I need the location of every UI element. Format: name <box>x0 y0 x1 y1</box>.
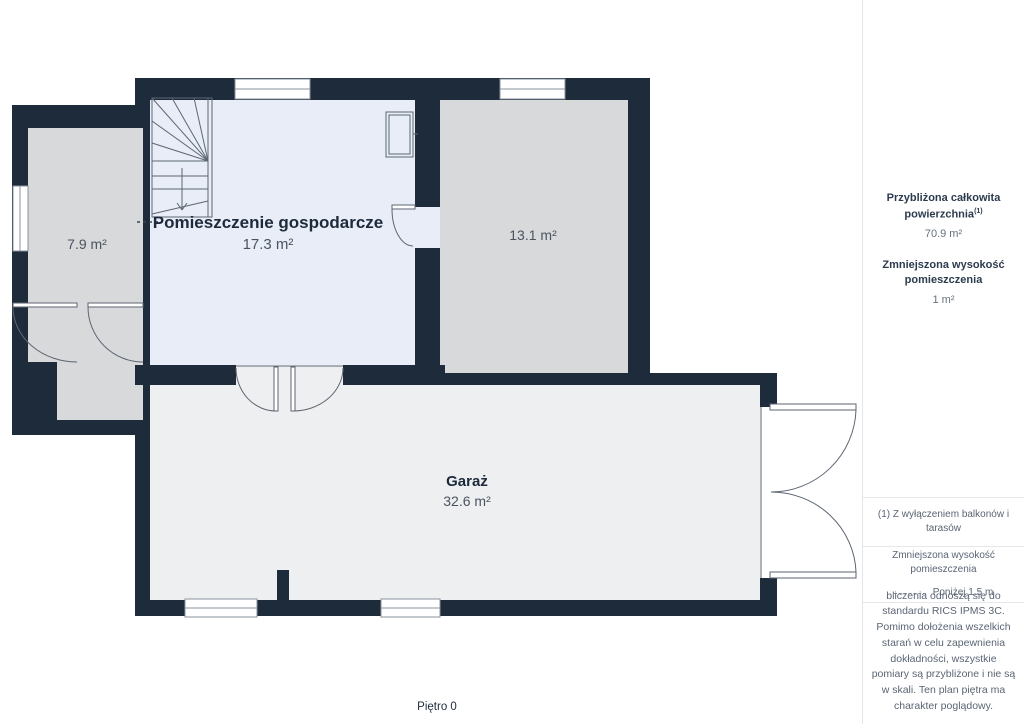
garage-name: Garaż <box>446 473 488 490</box>
footnote-section: (1) Z wyłączeniem balkonów i tarasów <box>863 498 1024 547</box>
window-top-right <box>500 79 565 99</box>
reduced-height-title: Zmniejszona wysokość pomieszczenia <box>873 258 1014 289</box>
garage-gate-lower-leaf <box>770 492 856 578</box>
window-bottom-mid <box>381 599 440 617</box>
total-area-value: 70.9 m² <box>925 228 962 240</box>
room-13-area: 13.1 m² <box>509 227 557 243</box>
floor-plan-page: Pomieszczenie gospodarcze 17.3 m² 13.1 m… <box>0 0 1024 724</box>
garage-gate-upper-leaf <box>770 404 856 492</box>
summary-section: Przybliżona całkowita powierzchnia(1) 70… <box>863 0 1024 498</box>
utility-room-name: Pomieszczenie gospodarcze <box>153 213 384 232</box>
interior-doorway-floor <box>415 207 440 248</box>
reduced-height-value: 1 m² <box>933 294 955 306</box>
window-bottom-left <box>185 599 257 617</box>
window-left <box>13 186 28 251</box>
garage-doorway-floor <box>236 366 343 386</box>
disclaimer-text: bliczenia odnoszą się do standardu RICS … <box>871 589 1016 715</box>
total-area-footnote-marker: (1) <box>974 208 983 215</box>
floor-plan-canvas: Pomieszczenie gospodarcze 17.3 m² 13.1 m… <box>0 0 862 724</box>
utility-room-area: 17.3 m² <box>243 236 294 253</box>
floor-label: Piętro 0 <box>417 701 457 713</box>
legend-title: Zmniejszona wysokość pomieszczenia <box>871 549 1016 577</box>
disclaimer-section: bliczenia odnoszą się do standardu RICS … <box>863 603 1024 723</box>
garage-area: 32.6 m² <box>443 493 491 509</box>
info-panel: Przybliżona całkowita powierzchnia(1) 70… <box>862 0 1024 724</box>
window-top-left <box>235 79 310 99</box>
total-area-title-text: Przybliżona całkowita powierzchnia <box>887 192 1001 220</box>
footnote-text: (1) Z wyłączeniem balkonów i tarasów <box>871 508 1016 536</box>
boiler-fixture <box>386 112 418 157</box>
room-79-area: 7.9 m² <box>67 236 107 252</box>
total-area-title: Przybliżona całkowita powierzchnia(1) <box>873 191 1014 222</box>
